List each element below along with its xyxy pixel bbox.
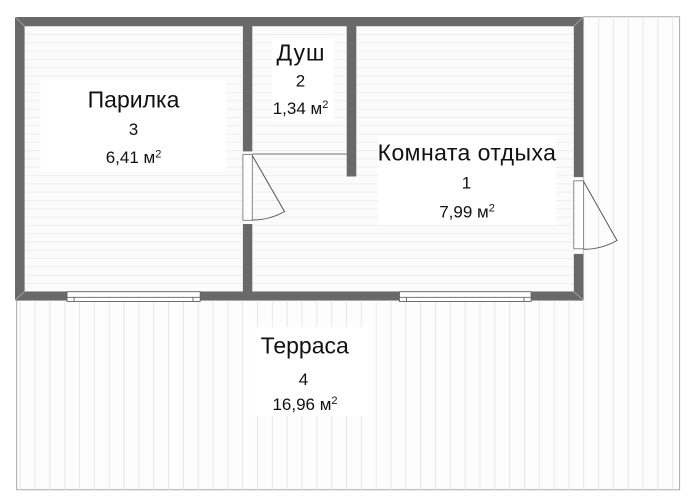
svg-text:Терраса: Терраса: [261, 333, 349, 359]
svg-text:16,96 м2: 16,96 м2: [272, 395, 337, 414]
svg-text:Парилка: Парилка: [88, 86, 180, 112]
svg-text:1,34 м2: 1,34 м2: [273, 99, 329, 118]
svg-text:6,41 м2: 6,41 м2: [106, 148, 162, 167]
svg-text:Душ: Душ: [276, 39, 325, 65]
svg-text:3: 3: [129, 120, 138, 139]
svg-text:Комната отдыха: Комната отдыха: [378, 139, 557, 165]
svg-text:1: 1: [462, 173, 471, 192]
svg-text:7,99 м2: 7,99 м2: [439, 203, 495, 222]
svg-text:4: 4: [299, 370, 308, 389]
svg-text:2: 2: [296, 72, 305, 91]
